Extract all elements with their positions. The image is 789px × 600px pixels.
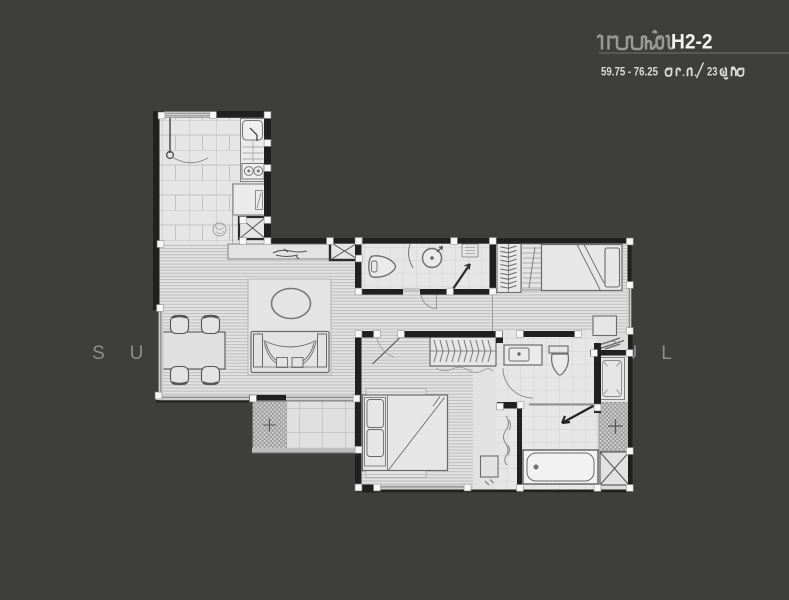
- svg-text:U: U: [130, 343, 144, 364]
- svg-text:H2-2: H2-2: [671, 31, 713, 54]
- svg-text:23: 23: [707, 65, 718, 79]
- svg-text:59.75 - 76.25: 59.75 - 76.25: [601, 65, 658, 79]
- svg-text:S: S: [92, 343, 105, 364]
- svg-text:L: L: [661, 343, 672, 364]
